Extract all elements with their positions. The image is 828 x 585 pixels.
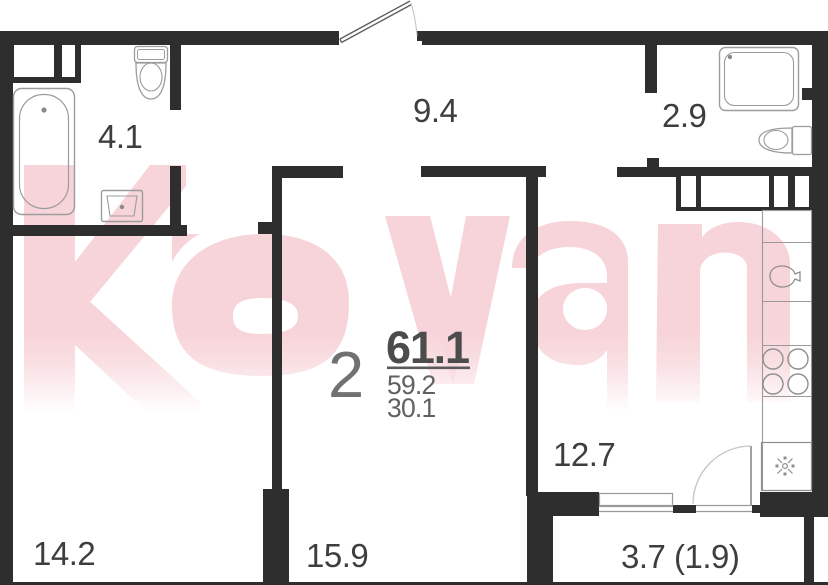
svg-text:3.7 (1.9): 3.7 (1.9) [621,538,739,575]
svg-text:4.1: 4.1 [98,118,142,155]
svg-text:12.7: 12.7 [553,436,615,473]
svg-text:30.1: 30.1 [387,393,435,423]
svg-text:14.2: 14.2 [33,535,95,572]
svg-text:2: 2 [328,338,364,411]
svg-text:61.1: 61.1 [386,322,469,373]
svg-text:9.4: 9.4 [413,92,458,129]
svg-text:2.9: 2.9 [662,97,706,134]
svg-text:15.9: 15.9 [306,537,368,574]
